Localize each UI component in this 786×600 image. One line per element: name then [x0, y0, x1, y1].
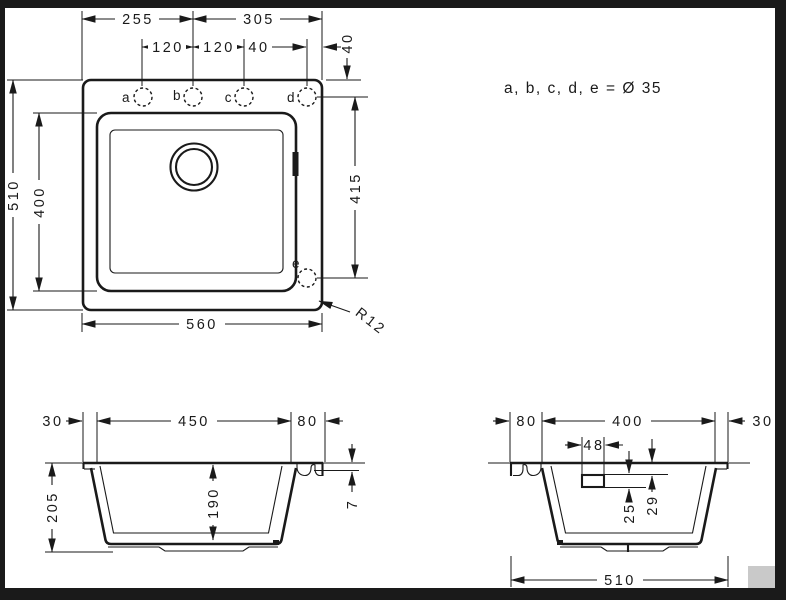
tap-holes: a b c d e: [122, 88, 316, 287]
side-dim-80: 80: [516, 414, 537, 430]
hole-a-circle: [134, 88, 152, 106]
side-dim-25: 25: [622, 502, 638, 523]
side-section-view: 80 400 30 48 25 29 510: [488, 412, 774, 589]
side-dim-400: 400: [612, 414, 644, 430]
front-dim-190: 190: [206, 487, 222, 519]
front-dim-205: 205: [45, 491, 61, 523]
dim-415: 415: [348, 172, 364, 204]
plan-view: a b c d e 255 30: [5, 11, 662, 339]
dim-560: 560: [186, 317, 218, 333]
technical-drawing: a b c d e 255 30: [0, 0, 786, 600]
hole-c-label: c: [225, 90, 232, 105]
hole-b-label: b: [173, 88, 181, 103]
front-dim-30: 30: [42, 414, 63, 430]
front-drip-edge: [297, 463, 322, 476]
scan-border: [0, 0, 786, 600]
dim-120-right: 120: [203, 40, 235, 56]
hole-d-circle: [298, 88, 316, 106]
dim-400-plan: 400: [32, 186, 48, 218]
side-dim-48: 48: [583, 438, 604, 454]
drain-inner-circle: [176, 149, 212, 185]
dim-40-horizontal: 40: [248, 40, 269, 56]
side-dim-30: 30: [752, 414, 773, 430]
front-section-view: 30 450 80 205 190 7: [42, 412, 365, 552]
extension-lines-front: [45, 412, 359, 552]
overflow-mark: [293, 152, 299, 176]
hole-c-circle: [235, 88, 253, 106]
dim-255: 255: [122, 12, 154, 28]
front-bowl-inner-wall: [100, 466, 282, 533]
holes-diameter-note: a, b, c, d, e = Ø 35: [504, 80, 662, 97]
side-drip-edge: [513, 463, 541, 476]
hole-b-circle: [184, 88, 202, 106]
bowl-outline: [97, 113, 296, 291]
hole-e-circle: [298, 269, 316, 287]
front-dim-7: 7: [345, 499, 361, 510]
bowl-bottom-outline: [110, 130, 283, 273]
hole-a-label: a: [122, 90, 130, 105]
drain-outer-circle: [171, 144, 218, 191]
side-dim-510: 510: [604, 573, 636, 589]
corner-radius-label: R12: [352, 305, 389, 339]
dim-305: 305: [243, 12, 275, 28]
sink-technical-drawing-page: a b c d e 255 30: [0, 0, 786, 600]
hole-e-label: e: [292, 256, 300, 271]
front-dim-80: 80: [297, 414, 318, 430]
side-dim-29: 29: [645, 494, 661, 515]
hole-d-label: d: [287, 90, 295, 105]
overflow-slot: [582, 475, 604, 487]
dim-120-left: 120: [152, 40, 184, 56]
dim-510-plan: 510: [6, 179, 22, 211]
front-dim-450: 450: [178, 414, 210, 430]
extension-lines-side: [510, 412, 728, 587]
dim-40-vertical: 40: [340, 32, 356, 53]
